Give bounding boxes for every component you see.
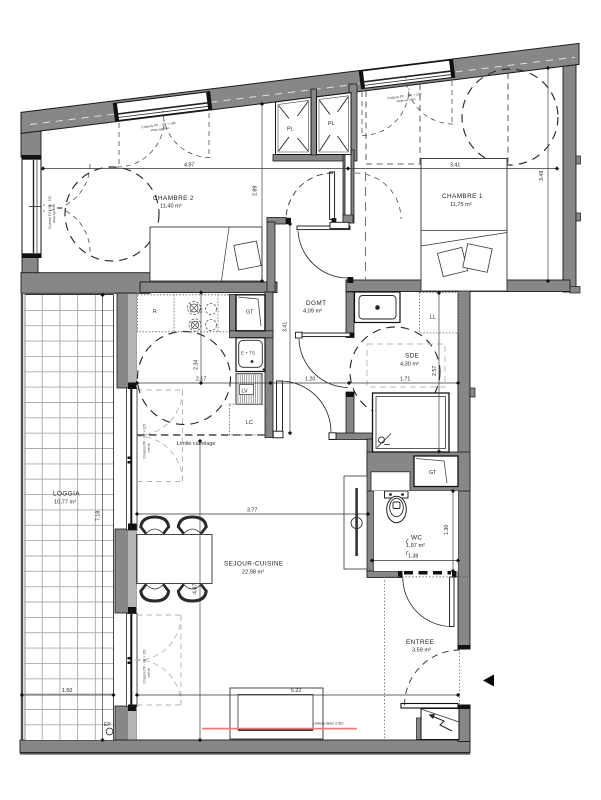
svg-text:3,59 m²: 3,59 m²	[412, 648, 431, 654]
svg-text:Limite carrelage: Limite carrelage	[177, 441, 215, 447]
svg-text:1.38: 1.38	[408, 554, 418, 560]
svg-text:LV: LV	[242, 389, 249, 395]
svg-text:E + TS: E + TS	[241, 351, 255, 356]
svg-text:CHAMBRE 1: CHAMBRE 1	[442, 193, 483, 200]
svg-text:4.87: 4.87	[193, 584, 199, 594]
svg-text:Linteau Bois 2.5m: Linteau Bois 2.5m	[313, 722, 343, 726]
svg-text:3.77: 3.77	[247, 508, 257, 514]
svg-text:Chassis F2 - VR - 150: Chassis F2 - VR - 150	[48, 196, 52, 229]
svg-text:LOGGIA: LOGGIA	[53, 491, 80, 498]
svg-text:allège app 40cm: allège app 40cm	[52, 204, 56, 223]
svg-text:4,09 m²: 4,09 m²	[303, 309, 322, 315]
svg-text:seuil alu: seuil alu	[147, 667, 151, 677]
svg-text:4,30 m²: 4,30 m²	[400, 362, 419, 368]
svg-text:Chassis PF - VR + 150: Chassis PF - VR + 150	[143, 649, 147, 684]
svg-text:seuil alu: seuil alu	[147, 442, 151, 452]
svg-text:2.89: 2.89	[253, 186, 259, 196]
svg-text:7.18: 7.18	[96, 511, 102, 521]
svg-text:LL: LL	[430, 315, 436, 321]
svg-text:ENTREE: ENTREE	[406, 639, 434, 646]
svg-text:GT: GT	[429, 470, 437, 476]
svg-text:5.22: 5.22	[291, 688, 301, 694]
svg-text:PL: PL	[328, 121, 335, 127]
svg-text:1.71: 1.71	[400, 377, 410, 383]
svg-text:1.50: 1.50	[62, 688, 72, 694]
svg-text:SDE: SDE	[405, 353, 419, 360]
svg-text:22,98 m²: 22,98 m²	[242, 570, 264, 576]
svg-text:3.41: 3.41	[450, 163, 460, 169]
svg-text:1,97 m²: 1,97 m²	[406, 543, 425, 549]
svg-text:LC: LC	[246, 420, 253, 426]
svg-text:WC: WC	[411, 535, 422, 542]
svg-text:PL: PL	[287, 127, 294, 133]
svg-text:1.20: 1.20	[305, 377, 315, 383]
svg-text:10,77 m²: 10,77 m²	[54, 500, 76, 506]
svg-text:CHAMBRE 2: CHAMBRE 2	[153, 195, 194, 202]
svg-text:2.57: 2.57	[432, 366, 438, 376]
svg-text:4.97: 4.97	[184, 163, 194, 169]
svg-text:1.30: 1.30	[444, 525, 450, 535]
svg-text:EP: EP	[104, 722, 111, 728]
svg-text:DGMT: DGMT	[306, 300, 326, 307]
svg-text:11,75 m²: 11,75 m²	[450, 202, 472, 208]
svg-text:R: R	[153, 309, 157, 315]
svg-text:GT: GT	[246, 310, 254, 316]
svg-text:3.41: 3.41	[283, 322, 289, 332]
svg-text:3.49: 3.49	[539, 171, 545, 181]
svg-text:2.17: 2.17	[196, 377, 206, 383]
svg-text:2.34: 2.34	[194, 360, 200, 370]
svg-text:SEJOUR-CUISINE: SEJOUR-CUISINE	[224, 561, 284, 568]
svg-text:11,40 m²: 11,40 m²	[160, 204, 182, 210]
svg-text:Chassis PF - VR + 225: Chassis PF - VR + 225	[143, 424, 147, 459]
